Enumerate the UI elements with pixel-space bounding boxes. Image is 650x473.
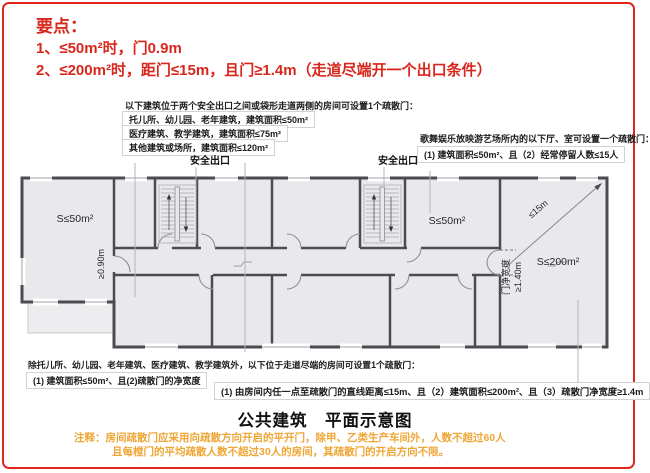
room-label-small-left: S≤50m²: [40, 213, 110, 225]
room-label-large: S≤200m²: [520, 256, 596, 268]
footnote-line-1: 注释：房间疏散门应采用向疏散方向开启的平开门，除甲、乙类生产车间外，人数不超过6…: [74, 430, 506, 445]
key-points-heading: 要点：: [36, 12, 87, 37]
door-width-annotation-left: ≥0.90m: [96, 236, 106, 292]
note-bottom-rule-small: (1) 建筑面积≤50m²、且(2)疏散门的净宽度: [26, 372, 207, 389]
note-right-rule: (1) 建筑面积≤50m²、且（2）经常停留人数≤15人: [417, 146, 625, 163]
page: 要点： 1、≤50m²时，门0.9m 2、≤200m²时，距门≤15m，且门≥1…: [0, 0, 650, 473]
entrance-platform: [28, 302, 114, 333]
note-bottom-intro: 除托儿所、幼儿园、老年建筑、医疗建筑、教学建筑外，以下位于走道尽端的房间可设置1…: [28, 358, 420, 371]
key-point-1: 1、≤50m²时，门0.9m: [36, 37, 182, 58]
door-width-caption: 门净宽度: [500, 245, 512, 309]
note-right-intro: 歌舞娱乐放映游艺场所内的以下厅、室可设置一个疏散门：: [420, 132, 650, 145]
footnote-line-2: 且每樘门的平均疏散人数不超过30人的房间，其疏散门的开启方向不限。: [112, 444, 449, 459]
door-width-annotation-right: 门净宽度 ≥1.40m: [500, 245, 524, 309]
safe-exit-label-2: 安全出口: [378, 152, 418, 167]
page-title: 公共建筑 平面示意图: [0, 407, 650, 431]
safe-exit-label-1: 安全出口: [190, 152, 230, 167]
door-width-value: ≥1.40m: [512, 245, 524, 309]
key-point-2: 2、≤200m²时，距门≤15m，且门≥1.4m（走道尽端开一个出口条件）: [36, 59, 492, 80]
room-label-small-right: S≤50m²: [412, 215, 482, 227]
note-bottom-rule-large: (1) 由房间内任一点至疏散门的直线距离≤15m、且（2）建筑面积≤200m²、…: [214, 382, 650, 400]
